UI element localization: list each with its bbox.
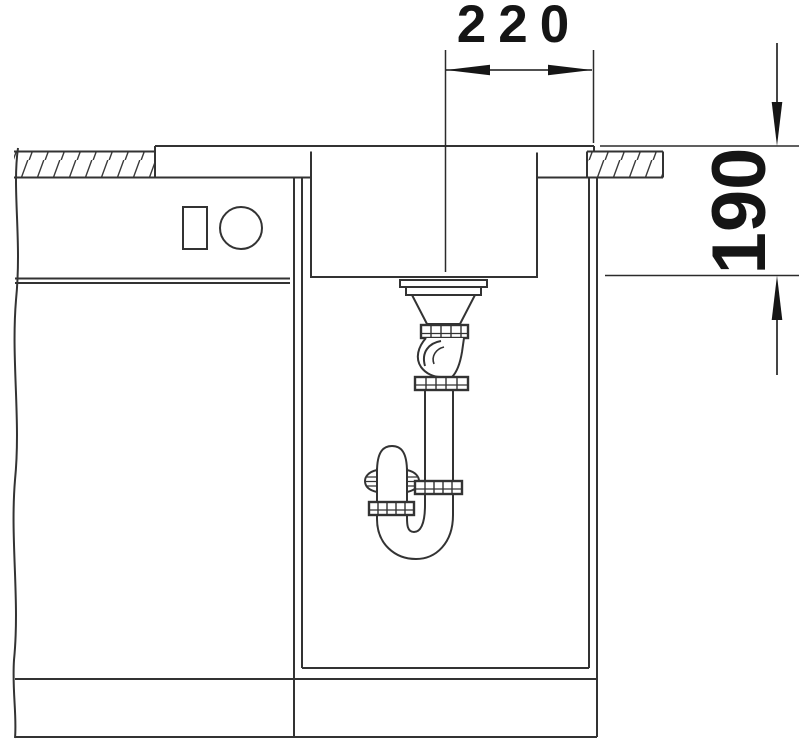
- dimension-190: 190: [600, 43, 799, 375]
- riser-grip-ears: [365, 470, 419, 492]
- cabinet: [14, 148, 597, 738]
- sink-installation-drawing: 220 190: [0, 0, 799, 743]
- strainer-funnel: [412, 295, 475, 324]
- technical-drawing-svg: 220 190: [0, 0, 799, 743]
- dimension-190-label: 190: [697, 148, 782, 275]
- break-edge-wavy-line: [14, 148, 18, 738]
- union-nut-2: [415, 377, 468, 390]
- drain-assembly: [365, 280, 487, 559]
- arrowhead-left: [446, 65, 490, 76]
- dimension-220-label: 220: [457, 0, 581, 54]
- countertop: [14, 146, 663, 178]
- strainer-flange-upper: [400, 280, 487, 287]
- tailpipe: [425, 390, 453, 481]
- control-rectangle: [183, 207, 207, 249]
- countertop-right-section: [587, 152, 663, 178]
- sink-bowl: [311, 152, 537, 278]
- drain-elbow: [418, 338, 464, 377]
- cabinet-plinth: [15, 679, 597, 737]
- strainer-flange-lower: [406, 287, 481, 295]
- dimension-220: 220: [446, 0, 594, 272]
- riser-dome-cap: [377, 446, 407, 472]
- arrowhead-down: [772, 102, 783, 146]
- sink: [155, 146, 594, 277]
- control-knob-circle: [220, 207, 262, 249]
- union-nut-riser: [369, 502, 414, 515]
- countertop-left-section: [14, 146, 155, 178]
- union-nut-1: [421, 325, 468, 338]
- union-nut-3: [415, 481, 462, 494]
- arrowhead-up: [772, 276, 783, 321]
- left-front-panel: [15, 207, 290, 283]
- arrowhead-right: [548, 65, 592, 76]
